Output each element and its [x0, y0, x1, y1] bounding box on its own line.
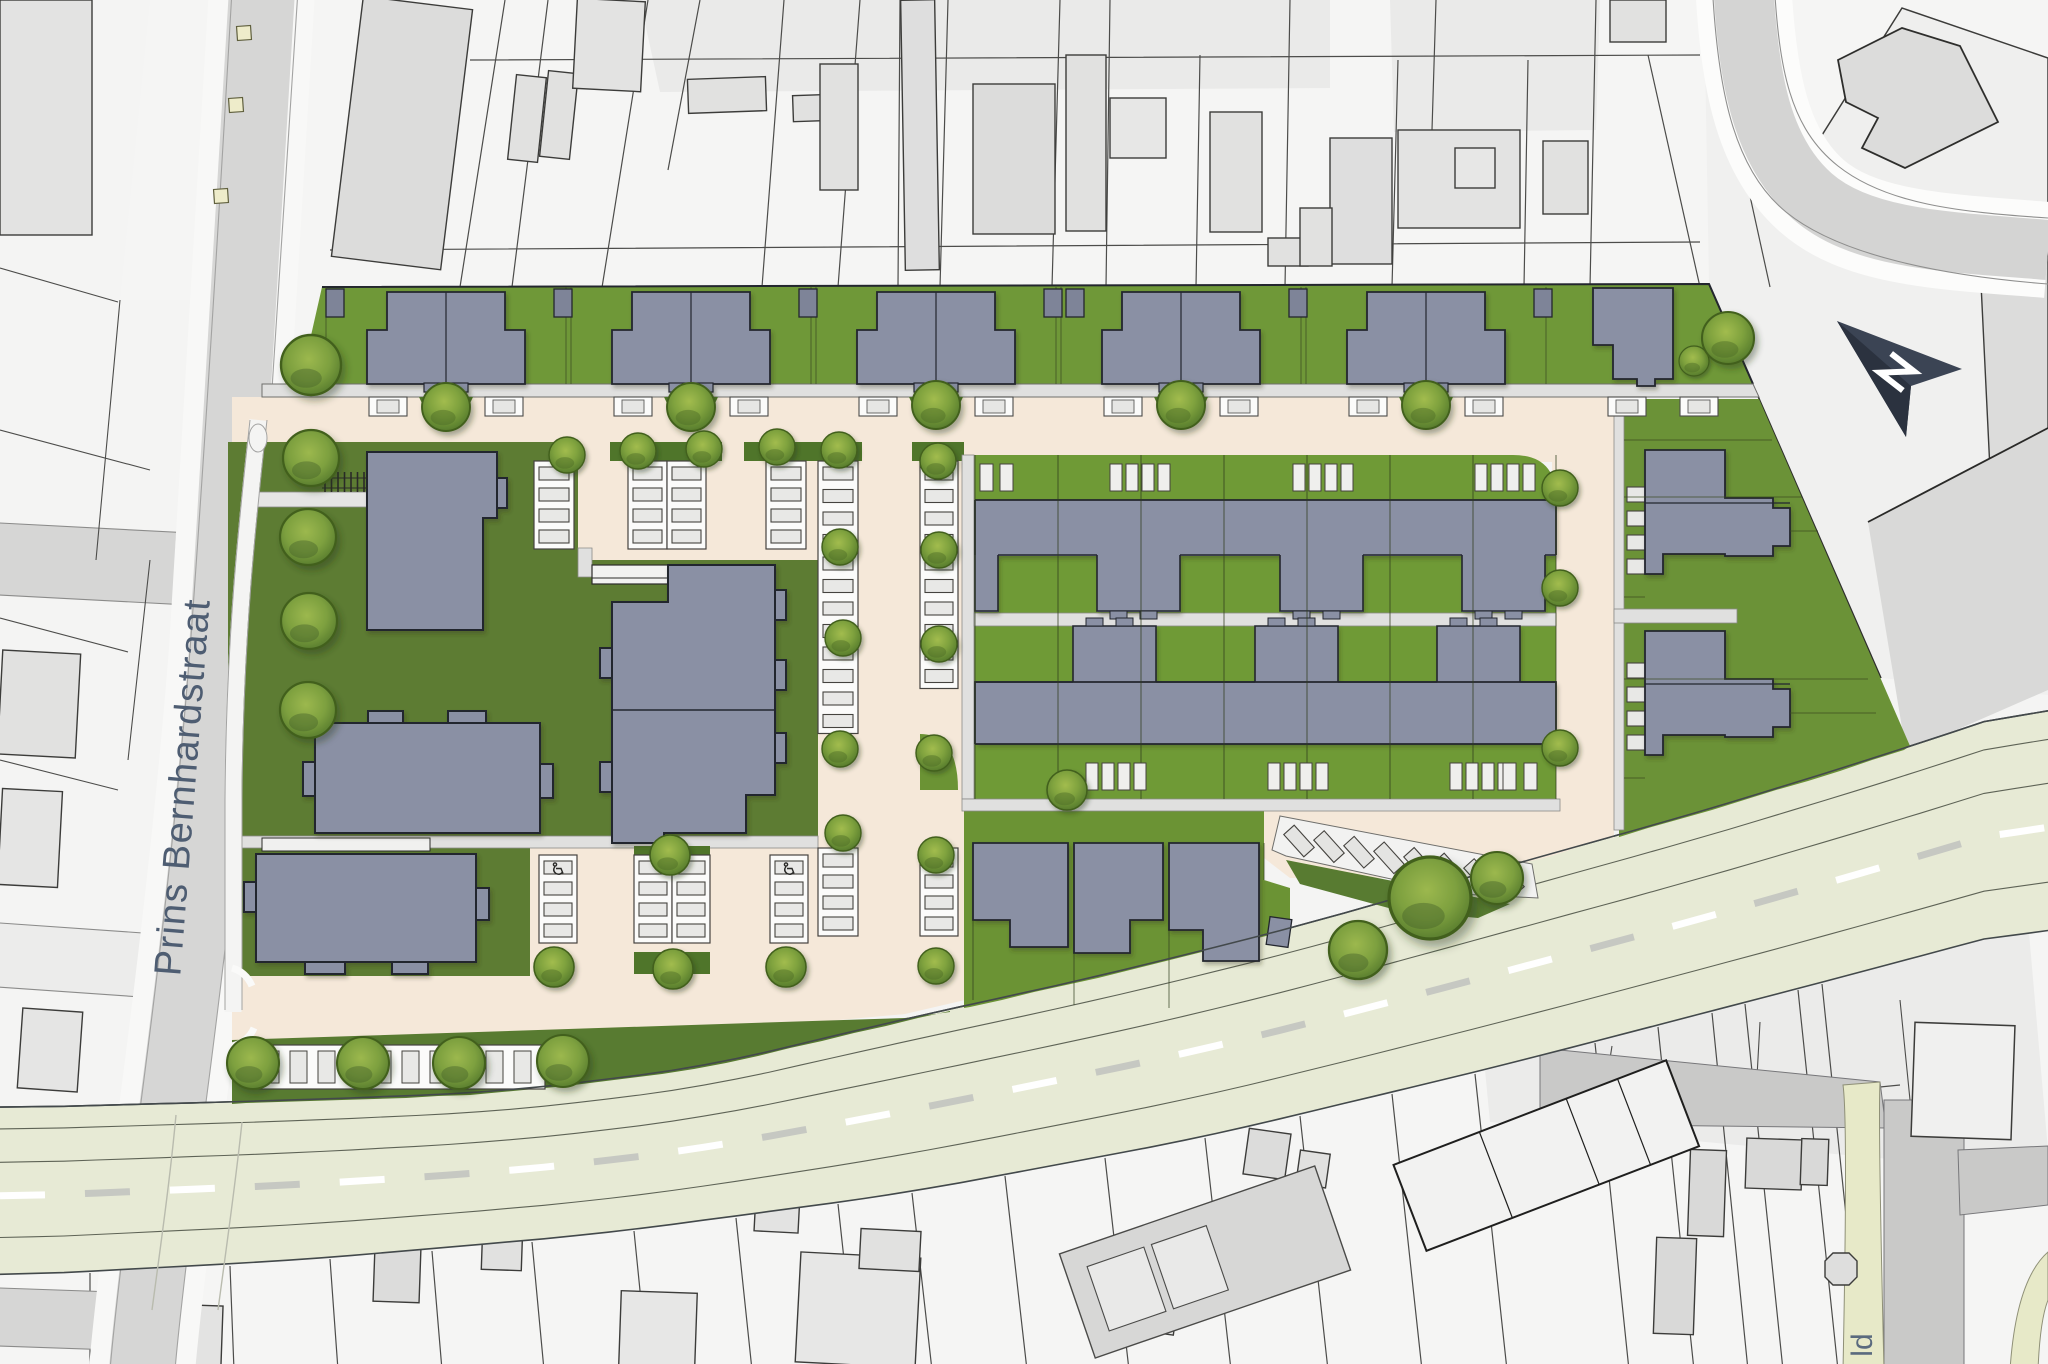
svg-text:ld: ld	[1846, 1333, 1879, 1356]
